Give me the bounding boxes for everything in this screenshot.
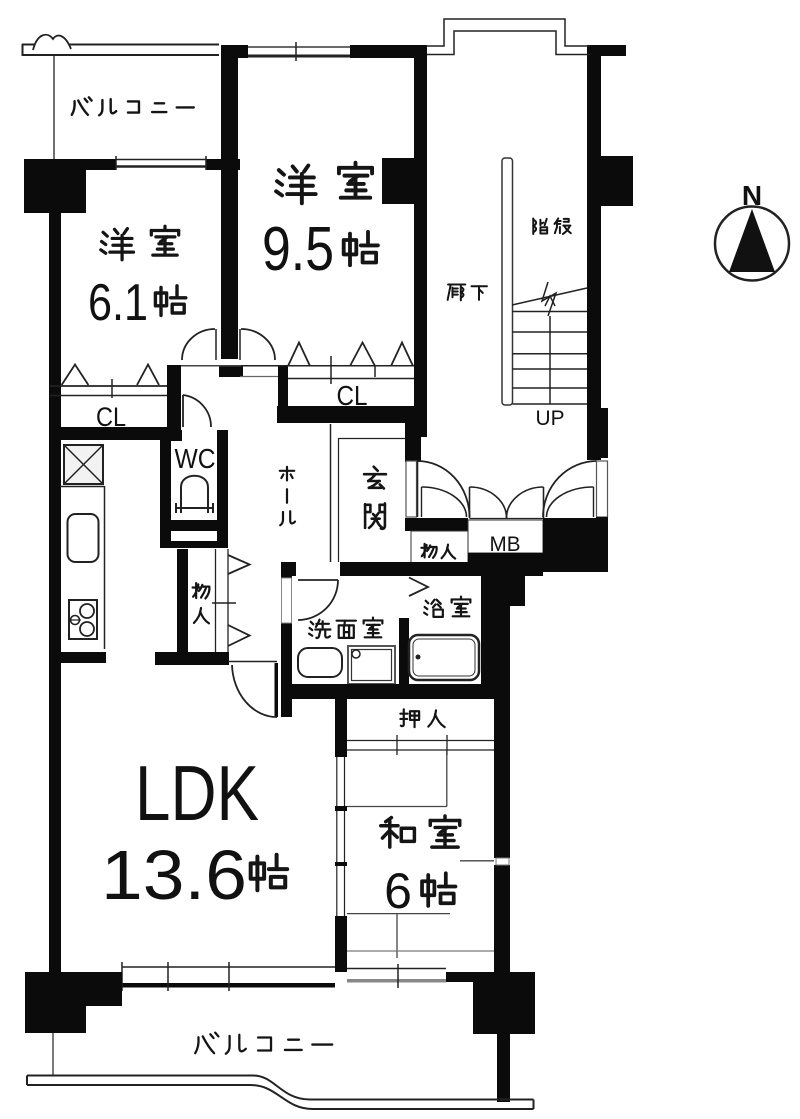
svg-text:WC: WC: [175, 443, 216, 474]
svg-text:MB: MB: [490, 533, 521, 556]
svg-text:13.6: 13.6: [101, 836, 247, 914]
svg-text:6: 6: [384, 863, 412, 919]
svg-text:N: N: [742, 180, 762, 211]
svg-text:6.1: 6.1: [88, 274, 148, 332]
svg-text:9.5: 9.5: [262, 215, 334, 284]
svg-text:UP: UP: [536, 407, 565, 430]
svg-text:LDK: LDK: [135, 749, 259, 837]
